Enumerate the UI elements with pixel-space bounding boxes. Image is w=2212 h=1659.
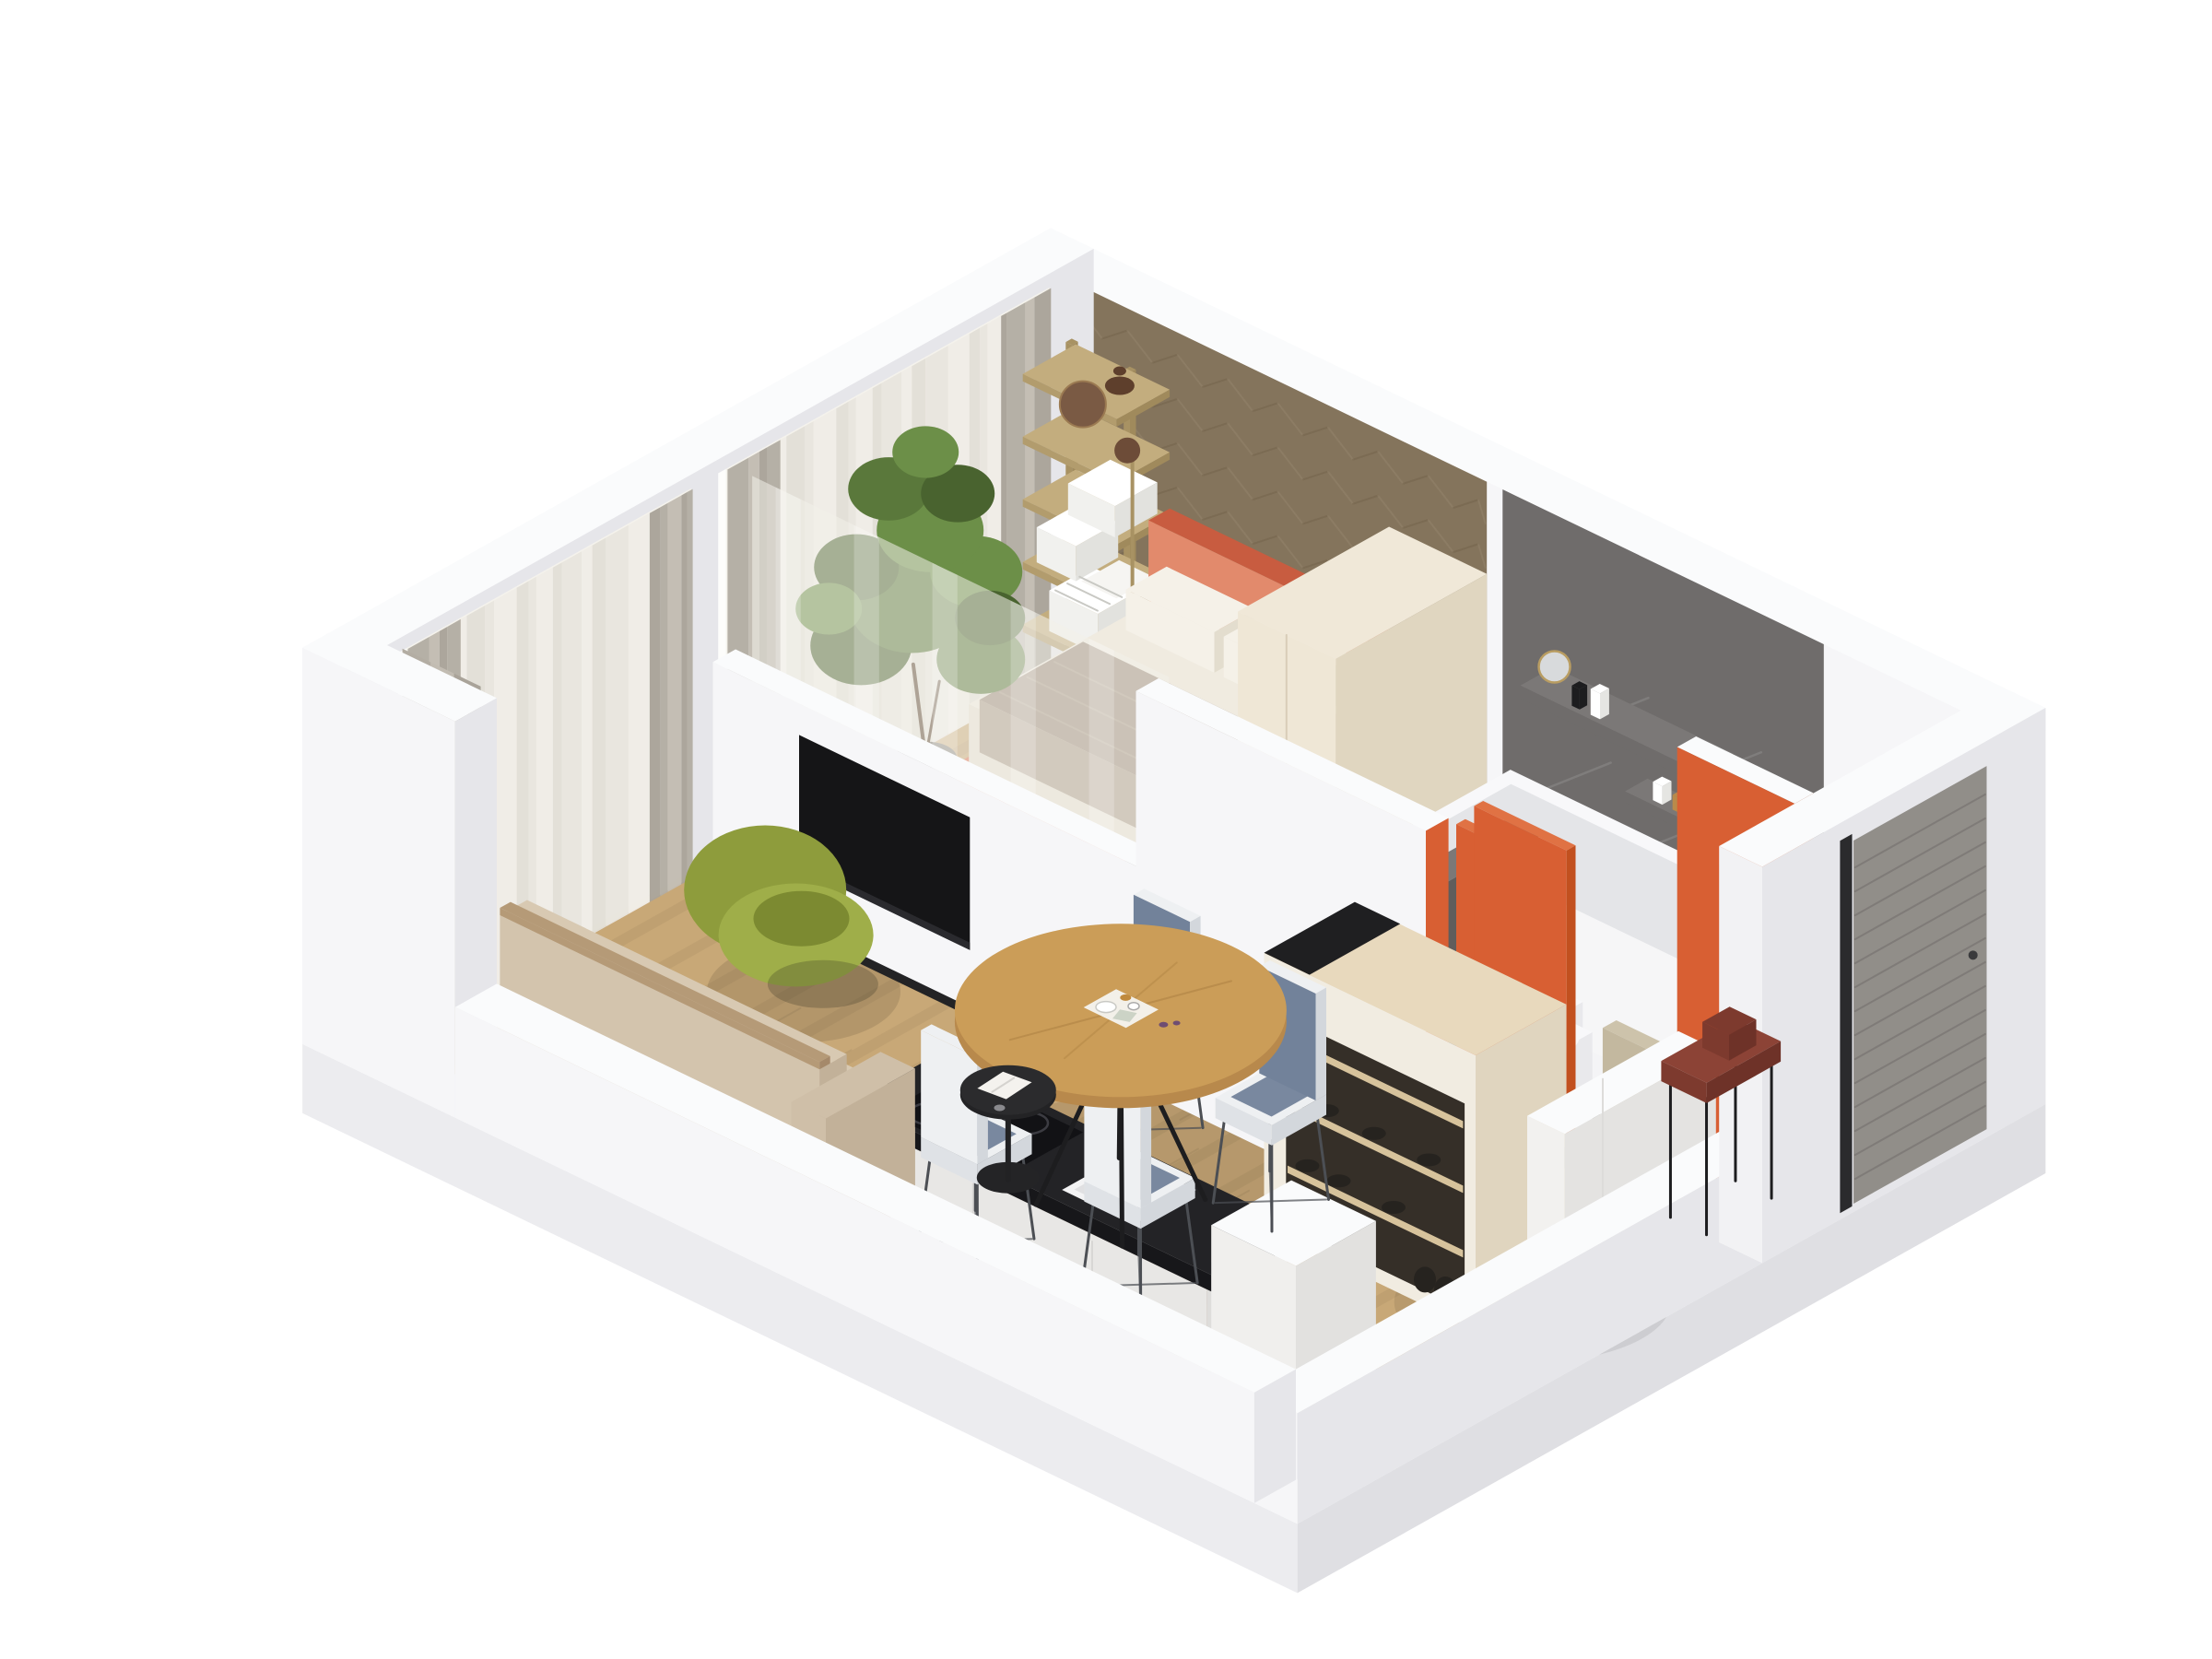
floor-plan-render	[0, 0, 2212, 1659]
floor-plan-image	[0, 0, 2212, 1659]
